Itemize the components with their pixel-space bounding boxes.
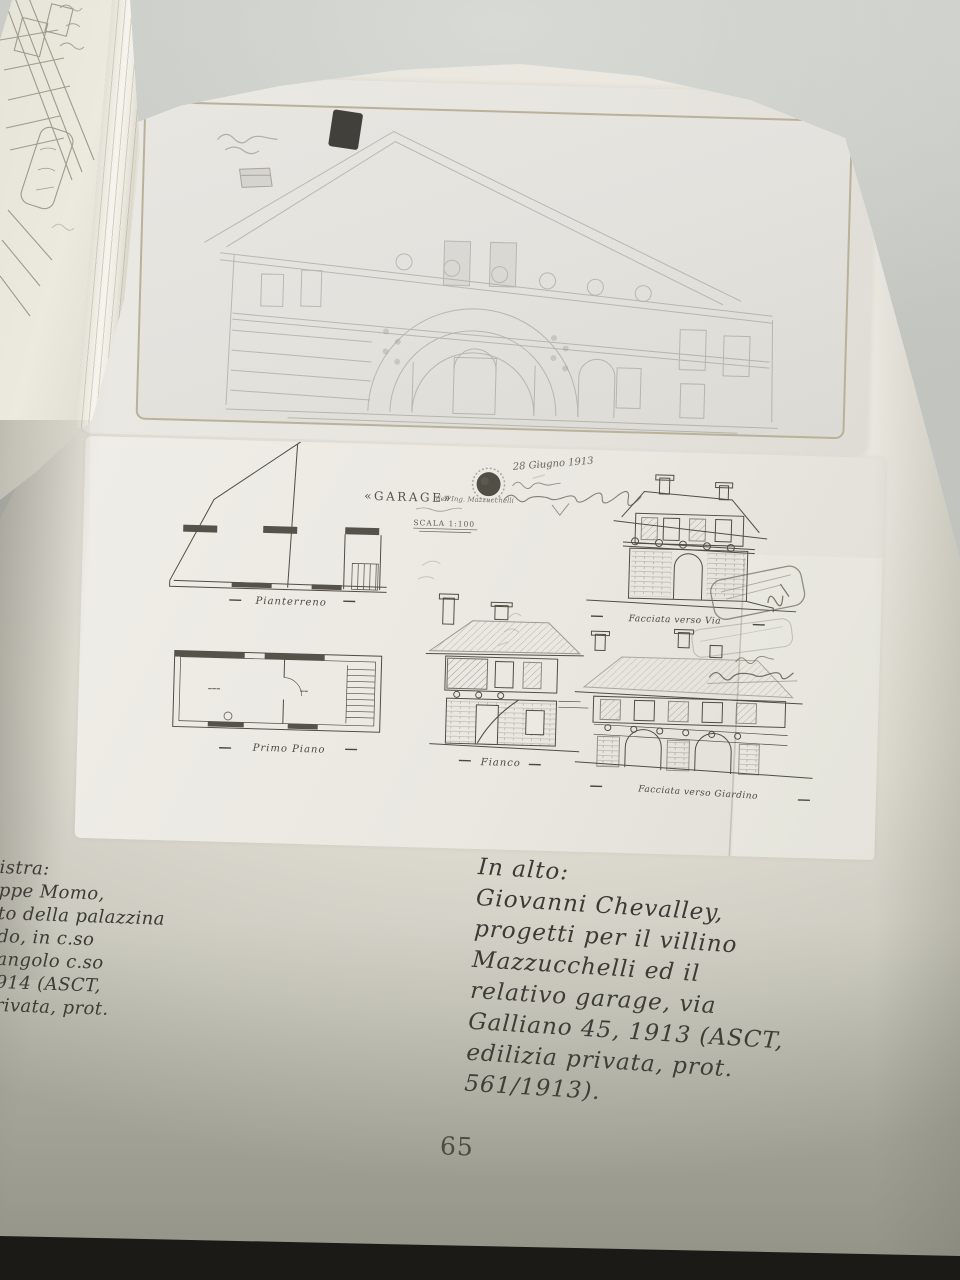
garage-drawing-sheet: Pianterreno «GARAGE» dell'Ing. Mazzucche…	[75, 436, 886, 860]
side-elevation	[423, 594, 591, 753]
spine-shadow	[0, 420, 90, 980]
handwriting-block: 28 Giugno 1913	[504, 453, 643, 517]
caption-right: In alto: Giovanni Chevalley, progetti pe…	[463, 852, 794, 1119]
svg-text:_ _: _ _	[301, 686, 308, 692]
handwriting-flourish	[552, 503, 569, 515]
caption-line: rivata, prot.	[0, 994, 162, 1023]
bottom-plate: Pianterreno «GARAGE» dell'Ing. Mazzucche…	[75, 436, 886, 860]
book-page: Pianterreno «GARAGE» dell'Ing. Mazzucche…	[0, 0, 960, 1280]
handwriting-line2	[512, 482, 560, 490]
side-label: Fianco	[480, 757, 521, 769]
book-photo-scene: Pianterreno «GARAGE» dell'Ing. Mazzucche…	[0, 0, 960, 1280]
round-ink-stamp-icon	[472, 468, 505, 501]
first-floor-plan: _ _ _ _ _	[173, 650, 382, 732]
ground-floor-plan	[170, 438, 391, 592]
handwriting-line3	[504, 488, 641, 506]
label-ground-floor: Pianterreno	[229, 595, 355, 610]
ink-stamp-dark-icon	[328, 109, 363, 150]
label-side-elevation: Fianco	[459, 756, 541, 769]
label-first-floor: Primo Piano	[219, 742, 357, 757]
plate-frame	[136, 101, 854, 440]
balcony-sketch	[239, 167, 273, 188]
handwritten-date: 28 Giugno 1913	[511, 456, 594, 473]
villa-elevation-drawing	[138, 103, 852, 438]
pencil-scribble	[217, 134, 277, 154]
plan-first-label: Primo Piano	[252, 743, 326, 756]
drawing-scale: SCALA 1:100	[413, 518, 475, 529]
svg-text:_ _ _: _ _ _	[209, 683, 220, 689]
plan-ground-label: Pianterreno	[254, 596, 326, 609]
top-plate	[81, 73, 877, 455]
page-number: 65	[440, 1131, 475, 1161]
front-street-label: Facciata verso Via	[628, 614, 722, 627]
